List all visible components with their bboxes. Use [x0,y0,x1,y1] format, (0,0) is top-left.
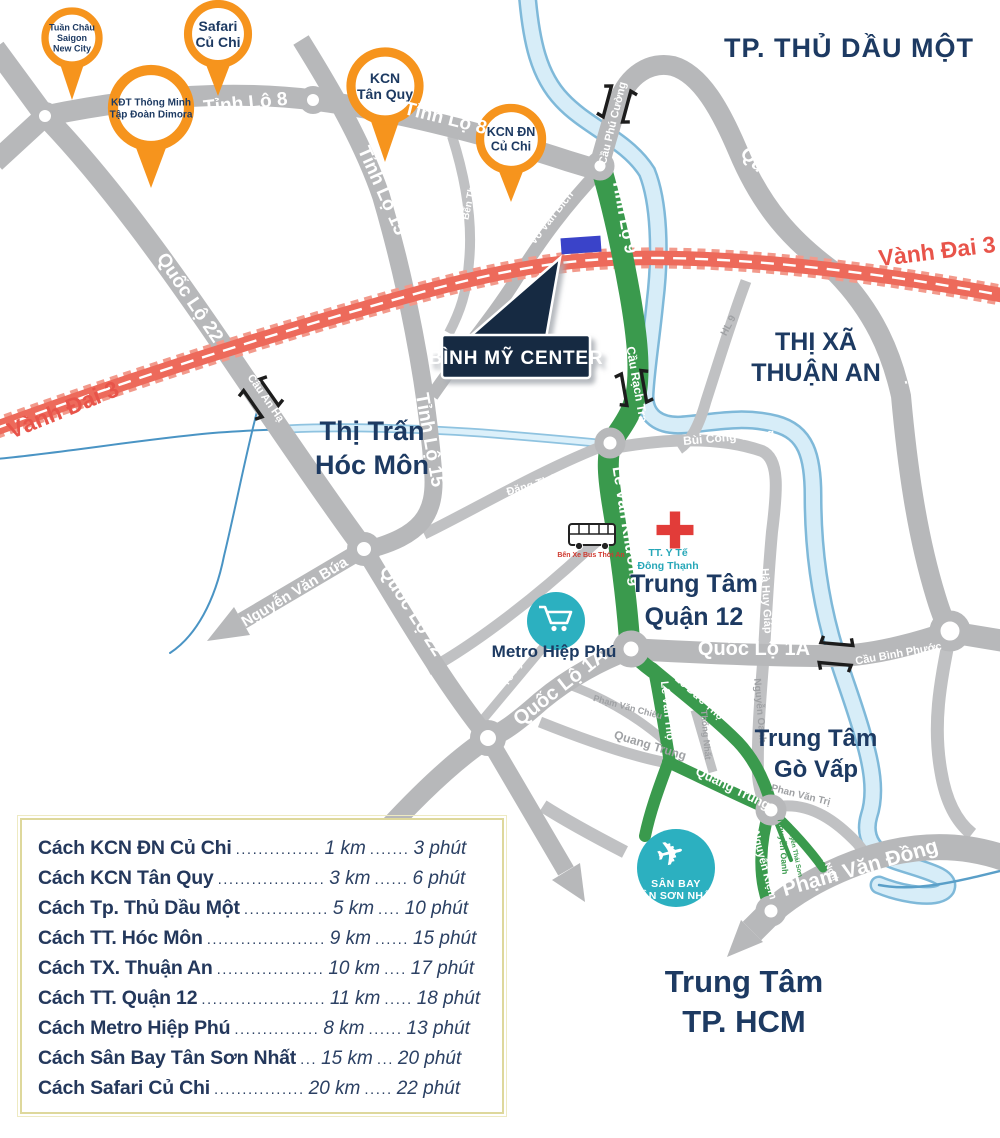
distance-row: Cách Tp. Thủ Dầu Một...............5 km.… [38,894,486,924]
label-line: Trung Tâm [755,725,878,752]
pin-label-line: Tuần Châu [49,23,95,33]
distance-d1: ................... [218,866,326,894]
bus-station-icon [569,524,615,550]
distance-min: 20 phút [398,1045,461,1073]
distance-d1: ............... [244,896,329,924]
distance-km: 5 km [333,895,374,923]
distance-min: 15 phút [413,925,476,953]
distance-km: 10 km [328,955,380,983]
label-tp-thu-dau-mot: TP. THỦ DẦU MỘT [724,31,974,63]
distance-name: Cách Metro Hiệp Phú [38,1014,230,1042]
distance-name: Cách Tp. Thủ Dầu Một [38,894,240,922]
pin-label-line: Củ Chi [491,140,531,154]
label-line: Thị Trấn [319,416,424,446]
distance-d1: ................ [214,1076,305,1104]
pin-label-line: Safari [199,18,238,34]
distance-min: 6 phút [412,865,465,893]
airport-label-line1: SÂN BAY [651,877,701,890]
label-line: TT. Y Tế [648,547,687,559]
distance-d2: .... [378,896,401,924]
distance-min: 22 phút [397,1075,460,1103]
label-line: TP. THỦ DẦU MỘT [724,31,974,63]
distance-d2: ..... [384,986,412,1014]
distance-d2: ..... [364,1076,392,1104]
road-label: Vành Đai 3 [877,231,997,271]
distance-d2: ...... [369,1016,403,1044]
distance-d1: ..................... [207,926,326,954]
airport-label-line2: TÂN SƠN NHẤT [634,889,718,902]
pin-label-line: Tân Quy [357,86,413,102]
distance-row: Cách KCN Tân Quy...................3 km.… [38,864,486,894]
label-metro-hiep-phu: Metro Hiệp Phú [492,642,617,661]
distance-name: Cách TX. Thuận An [38,954,213,982]
pin-label-line: KĐT Thông Minh [111,98,191,109]
road-label: Quốc Lộ 22 [375,562,449,660]
distance-km: 11 km [330,985,380,1013]
distance-min: 3 phút [413,835,466,863]
pin-label-line: Saigon [57,33,87,43]
distance-row: Cách TT. Hóc Môn.....................9 k… [38,924,486,954]
label-line: Bến Xe Bus Thới An [557,551,624,559]
label-line: Metro Hiệp Phú [492,642,617,661]
distance-row: Cách Sân Bay Tân Sơn Nhất...15 km...20 p… [38,1044,486,1074]
pin-tuan-chau-saigon-new-city: Tuần ChâuSaigonNew City [45,11,99,100]
callout-title: BÌNH MỸ CENTER [429,347,604,369]
label-line: Đông Thạnh [637,560,698,572]
distance-min: 10 phút [405,895,468,923]
distance-name: Cách TT. Quận 12 [38,984,197,1012]
pin-label-line: Củ Chi [195,34,240,50]
distance-d1: ...................... [201,986,326,1014]
pin-label-line: KCN ĐN [487,125,536,139]
label-line: Trung Tâm [630,570,758,598]
pin-kcn-dn-cu-chi: KCN ĐNCủ Chi [480,108,542,202]
road-label: Quốc Lộ 1A [698,638,810,660]
pin-label-line: New City [53,44,91,54]
label-line: THUẬN AN [751,357,881,387]
pin-label-line: Tập Đoàn Dimora [110,109,193,120]
medical-cross-icon [655,510,694,549]
distance-d2: ...... [375,926,409,954]
distance-row: Cách TX. Thuận An...................10 k… [38,954,486,984]
pin-label: SafariCủ Chi [195,18,240,50]
label-thi-xa-thuan-an: THỊ XÃTHUẬN AN [751,326,881,387]
pin-safari-cu-chi: SafariCủ Chi [188,4,248,96]
pin-label: KCN ĐNCủ Chi [487,125,536,154]
label-line: Gò Vấp [774,756,858,783]
project-site-marker [560,236,601,255]
distance-row: Cách KCN ĐN Củ Chi...............1 km...… [38,834,486,864]
distance-d1: ............... [236,836,321,864]
distance-row: Cách Safari Củ Chi................20 km.… [38,1074,486,1104]
distance-row: Cách TT. Quận 12......................11… [38,984,486,1014]
distance-name: Cách Sân Bay Tân Sơn Nhất [38,1044,296,1072]
road-label: Quốc Lộ 22 [152,249,227,347]
label-line: Quận 12 [645,603,744,631]
pin-kdt-thong-minh-dimora: KĐT Thông MinhTập Đoàn Dimora [110,70,193,188]
distance-d2: .... [384,956,407,984]
distance-d1: ... [300,1046,317,1074]
distance-min: 13 phút [407,1015,470,1043]
distance-name: Cách KCN Tân Quy [38,864,214,892]
distance-km: 9 km [330,925,371,953]
pin-label: KĐT Thông MinhTập Đoàn Dimora [110,98,193,121]
distance-km: 15 km [321,1045,373,1073]
label-thi-tran-hoc-mon: Thị TrấnHóc Môn [315,416,429,480]
road-label: Nguyễn Kiệm [749,829,780,900]
location-map-page: ✈ SÂN BAY TÂN SƠN NHẤT BÌNH MỸ CENTER Tu… [0,0,1000,1138]
distance-table: Cách KCN ĐN Củ Chi...............1 km...… [20,818,504,1114]
label-ben-xe-bus-thoi-an: Bến Xe Bus Thới An [557,551,624,559]
distance-km: 20 km [309,1075,361,1103]
distance-km: 3 km [329,865,370,893]
distance-km: 8 km [323,1015,364,1043]
distance-min: 17 phút [411,955,474,983]
distance-d1: ............... [234,1016,319,1044]
label-trung-tam-tp-hcm: Trung TâmTP. HCM [665,964,823,1039]
label-tt-y-te-dong-thanh: TT. Y TếĐông Thạnh [637,547,698,572]
label-line: THỊ XÃ [775,326,857,356]
distance-d2: ...... [374,866,408,894]
road-label: Nguyễn Văn Bứa [238,553,351,630]
pin-label-line: KCN [370,70,400,86]
label-line: Trung Tâm [665,964,823,999]
distance-name: Cách Safari Củ Chi [38,1074,210,1102]
distance-name: Cách KCN ĐN Củ Chi [38,834,232,862]
distance-d2: ....... [370,836,410,864]
distance-d2: ... [377,1046,394,1074]
distance-d1: ................... [217,956,325,984]
distance-row: Cách Metro Hiệp Phú...............8 km..… [38,1014,486,1044]
distance-km: 1 km [325,835,366,863]
label-line: Hóc Môn [315,450,429,480]
distance-name: Cách TT. Hóc Môn [38,924,203,952]
label-trung-tam-quan-12: Trung TâmQuận 12 [630,570,758,631]
label-line: TP. HCM [682,1004,805,1039]
distance-min: 18 phút [417,985,480,1013]
